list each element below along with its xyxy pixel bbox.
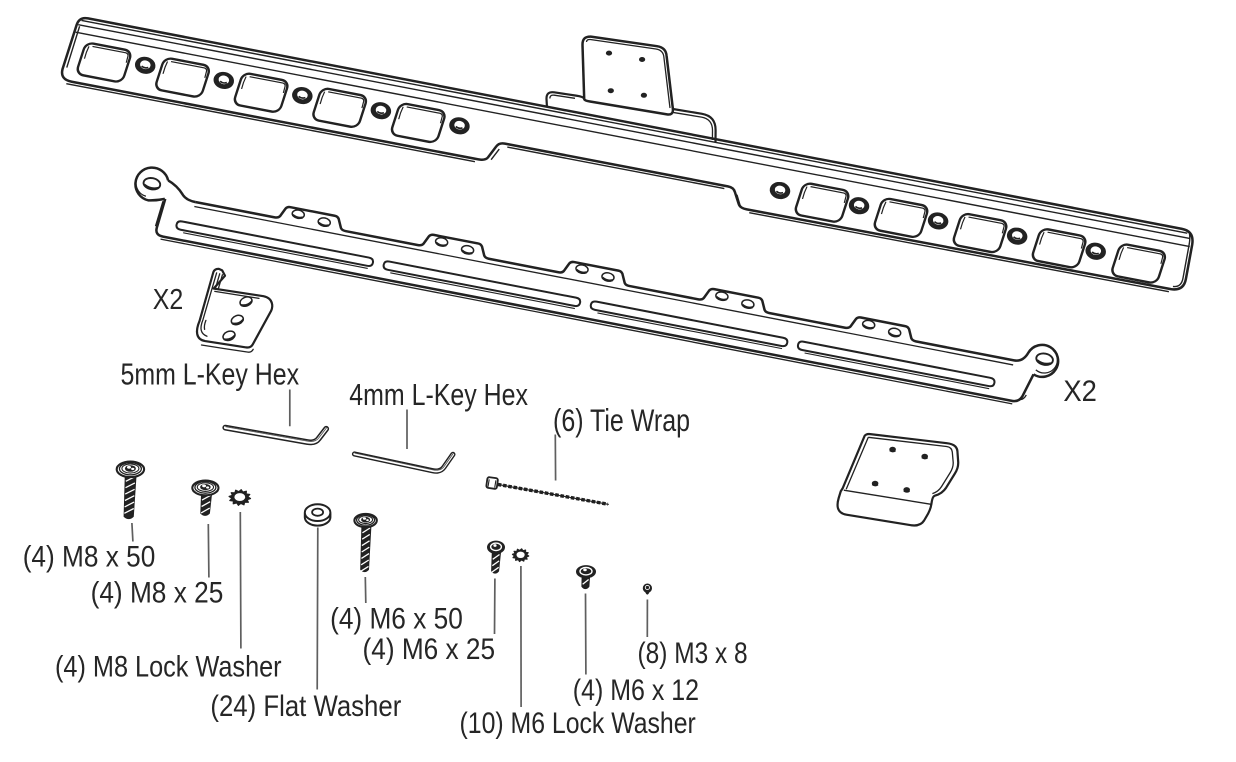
svg-text:X2: X2: [1063, 375, 1097, 408]
svg-text:5mm L-Key Hex: 5mm L-Key Hex: [121, 357, 300, 392]
svg-text:(8) M3 x 8: (8) M3 x 8: [638, 637, 748, 670]
svg-text:(4) M8 Lock Washer: (4) M8 Lock Washer: [55, 650, 282, 683]
svg-text:(10) M6 Lock Washer: (10) M6 Lock Washer: [460, 707, 696, 740]
svg-text:(4) M6 x 25: (4) M6 x 25: [363, 633, 496, 666]
svg-text:(6) Tie Wrap: (6) Tie Wrap: [553, 402, 690, 438]
svg-text:(4) M8 x 25: (4) M8 x 25: [91, 577, 224, 610]
svg-text:(4) M6 x 50: (4) M6 x 50: [330, 603, 463, 636]
svg-text:X2: X2: [153, 284, 184, 316]
svg-text:(4) M8 x 50: (4) M8 x 50: [23, 541, 156, 574]
svg-text:(24) Flat Washer: (24) Flat Washer: [210, 690, 401, 723]
svg-text:4mm L-Key Hex: 4mm L-Key Hex: [349, 377, 528, 412]
svg-text:(4) M6 x 12: (4) M6 x 12: [573, 674, 699, 707]
